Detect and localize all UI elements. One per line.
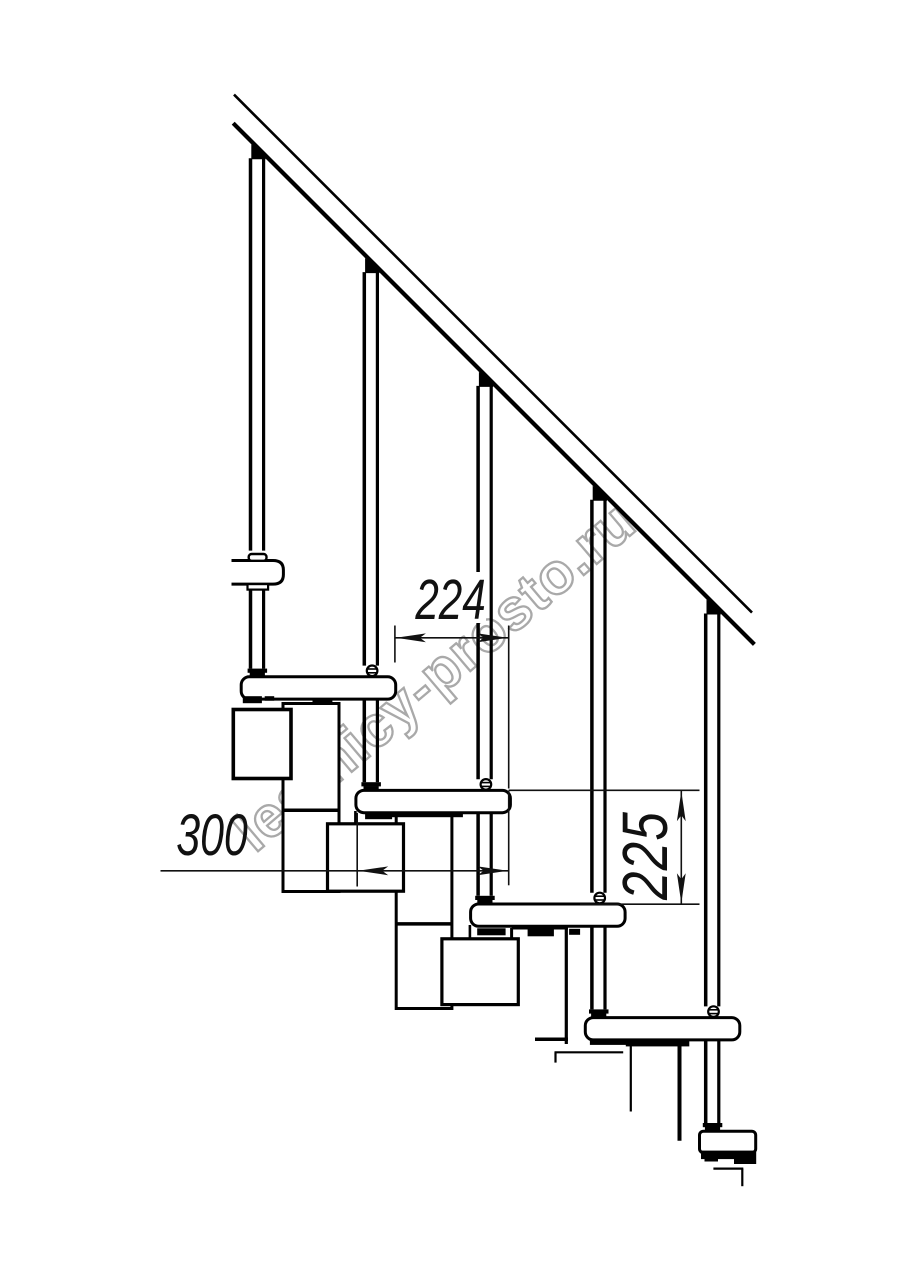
svg-text:225: 225: [611, 811, 682, 901]
svg-text:300: 300: [176, 803, 248, 868]
svg-text:224: 224: [414, 568, 485, 632]
